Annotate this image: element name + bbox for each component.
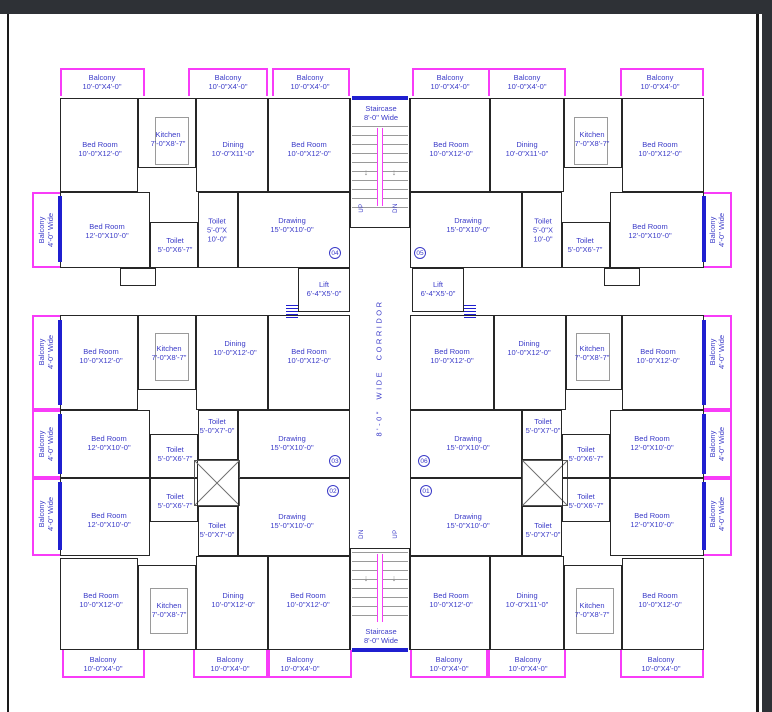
unit-number-badge: 06 — [418, 455, 430, 467]
dining-label: Dining10'-0"X12'-0" — [211, 591, 254, 609]
drawing-label: Drawing15'-0"X10'-0" — [270, 434, 313, 452]
drawing-label: Drawing15'-0"X10'-0" — [446, 434, 489, 452]
corridor-label: 8'-0" WIDE CORRIDOR — [375, 299, 384, 436]
bedroom-label: Bed Room12'-0"X10'-0" — [630, 434, 673, 452]
kitchen-label: Kitchen7'-0"X8'-7" — [575, 344, 610, 362]
kitchen-label: Kitchen7'-0"X8'-7" — [575, 130, 610, 148]
kitchen-label: Kitchen7'-0"X8'-7" — [151, 130, 186, 148]
kitchen-label: Kitchen7'-0"X8'-7" — [152, 344, 187, 362]
balcony-door-line — [58, 414, 62, 474]
bedroom-label: Bed Room10'-0"X12'-0" — [638, 591, 681, 609]
stair-up-label: UP — [359, 203, 365, 212]
bedroom-label: Bed Room10'-0"X12'-0" — [78, 140, 121, 158]
drawing-label: Drawing15'-0"X10'-0" — [446, 512, 489, 530]
balcony-label: Balcony10'-0"X4'-0" — [430, 73, 469, 91]
toilet-label: Toilet5'-0"X7'-0" — [526, 417, 561, 435]
window-frame-top — [0, 0, 772, 14]
stair-dn-label: DN — [393, 203, 399, 213]
balcony-label: Balcony10'-0"X4'-0" — [290, 73, 329, 91]
bedroom-label: Bed Room10'-0"X12'-0" — [287, 347, 330, 365]
balcony-label: Balcony10'-0"X4'-0" — [640, 73, 679, 91]
bedroom-label: Bed Room12'-0"X10'-0" — [87, 511, 130, 529]
unit-number-badge: 01 — [420, 485, 432, 497]
balcony-door-line — [702, 414, 706, 474]
lift-door-hatch — [464, 305, 476, 318]
bedroom-label: Bed Room10'-0"X12'-0" — [429, 140, 472, 158]
balcony-label: Balcony10'-0"X4'-0" — [508, 655, 547, 673]
bedroom-label: Bed Room10'-0"X12'-0" — [430, 347, 473, 365]
staircase-landing-edge — [352, 648, 408, 652]
balcony-door-line — [58, 482, 62, 550]
dining-label: Dining10'-0"X12'-0" — [213, 339, 256, 357]
sheet-border-left — [7, 14, 9, 712]
bedroom-label: Bed Room10'-0"X12'-0" — [287, 140, 330, 158]
bedroom-label: Bed Room12'-0"X10'-0" — [628, 222, 671, 240]
balcony-side-label: Balcony4'-0" Wide — [708, 427, 726, 461]
balcony-door-line — [58, 196, 62, 262]
balcony-side-label: Balcony4'-0" Wide — [37, 427, 55, 461]
drawing-label: Drawing15'-0"X10'-0" — [446, 216, 489, 234]
dining-label: Dining10'-0"X12'-0" — [507, 339, 550, 357]
staircase-landing-edge — [352, 96, 408, 100]
unit-number-badge: 02 — [327, 485, 339, 497]
balcony-side-label: Balcony4'-0" Wide — [708, 213, 726, 247]
balcony-door-line — [702, 320, 706, 405]
stair-direction-arrow: ↓ — [392, 573, 397, 583]
bedroom-label: Bed Room10'-0"X12'-0" — [638, 140, 681, 158]
floor-plan-page: { "colors": { "wall": "#262626", "balcon… — [0, 0, 772, 712]
balcony-label: Balcony10'-0"X4'-0" — [507, 73, 546, 91]
kitchen-label: Kitchen7'-0"X8'-7" — [152, 601, 187, 619]
balcony-side-label: Balcony4'-0" Wide — [37, 497, 55, 531]
stair-dn-label: DN — [359, 529, 365, 539]
balcony-door-line — [58, 320, 62, 405]
stair-stringer — [377, 554, 383, 622]
balcony-side-label: Balcony4'-0" Wide — [708, 497, 726, 531]
duct-shaft — [194, 460, 240, 506]
balcony-side-label: Balcony4'-0" Wide — [37, 213, 55, 247]
balcony-door-line — [702, 482, 706, 550]
window-frame-right — [762, 0, 772, 712]
stair-stringer — [377, 128, 383, 206]
toilet-label: Toilet5'-0"X6'-7" — [569, 445, 604, 463]
balcony-label: Balcony10'-0"X4'-0" — [82, 73, 121, 91]
drawing-label: Drawing15'-0"X10'-0" — [270, 512, 313, 530]
sheet-border-right — [756, 14, 759, 712]
bedroom-label: Bed Room12'-0"X10'-0" — [630, 511, 673, 529]
room-outline-dining — [196, 315, 268, 410]
toilet-label: Toilet5'-0"X6'-7" — [569, 492, 604, 510]
toilet-label: Toilet5'-0"X10'-0" — [533, 216, 553, 243]
unit-number-badge: 04 — [329, 247, 341, 259]
toilet-label: Toilet5'-0"X10'-0" — [207, 216, 227, 243]
stair-up-label: UP — [393, 529, 399, 538]
bedroom-label: Bed Room10'-0"X12'-0" — [636, 347, 679, 365]
lift-label: Lift6'-4"X5'-0" — [421, 280, 456, 298]
balcony-side-label: Balcony4'-0" Wide — [37, 335, 55, 369]
bedroom-label: Bed Room10'-0"X12'-0" — [79, 591, 122, 609]
balcony-door-line — [702, 196, 706, 262]
unit-number-badge: 03 — [329, 455, 341, 467]
balcony-label: Balcony10'-0"X4'-0" — [208, 73, 247, 91]
entrance-porch — [604, 268, 640, 286]
balcony-label: Balcony10'-0"X4'-0" — [210, 655, 249, 673]
toilet-label: Toilet5'-0"X6'-7" — [158, 492, 193, 510]
balcony-label: Balcony10'-0"X4'-0" — [280, 655, 319, 673]
kitchen-label: Kitchen7'-0"X8'-7" — [575, 601, 610, 619]
balcony-side-label: Balcony4'-0" Wide — [708, 335, 726, 369]
drawing-label: Drawing15'-0"X10'-0" — [270, 216, 313, 234]
dining-label: Dining10'-0"X11'-0" — [506, 140, 549, 158]
staircase-label: Staircase8'-0" Wide — [364, 104, 398, 122]
bedroom-label: Bed Room10'-0"X12'-0" — [286, 591, 329, 609]
toilet-label: Toilet5'-0"X6'-7" — [158, 236, 193, 254]
bedroom-label: Bed Room12'-0"X10'-0" — [85, 222, 128, 240]
staircase-label: Staircase8'-0" Wide — [364, 627, 398, 645]
toilet-label: Toilet5'-0"X7'-0" — [200, 521, 235, 539]
stair-direction-arrow: ↓ — [392, 167, 397, 177]
toilet-label: Toilet5'-0"X6'-7" — [568, 236, 603, 254]
entrance-porch — [120, 268, 156, 286]
room-outline-dining — [494, 315, 566, 410]
toilet-label: Toilet5'-0"X6'-7" — [158, 445, 193, 463]
lift-door-hatch — [286, 305, 298, 318]
bedroom-label: Bed Room10'-0"X12'-0" — [429, 591, 472, 609]
dining-label: Dining10'-0"X11'-0" — [212, 140, 255, 158]
dining-label: Dining10'-0"X11'-0" — [506, 591, 549, 609]
bedroom-label: Bed Room10'-0"X12'-0" — [79, 347, 122, 365]
balcony-label: Balcony10'-0"X4'-0" — [641, 655, 680, 673]
lift-label: Lift6'-4"X5'-0" — [307, 280, 342, 298]
stair-direction-arrow: ↓ — [364, 167, 369, 177]
floor-plan: Balcony10'-0"X4'-0" Balcony10'-0"X4'-0" … — [0, 0, 772, 712]
toilet-label: Toilet5'-0"X7'-0" — [526, 521, 561, 539]
unit-number-badge: 05 — [414, 247, 426, 259]
bedroom-label: Bed Room12'-0"X10'-0" — [87, 434, 130, 452]
balcony-label: Balcony10'-0"X4'-0" — [83, 655, 122, 673]
stair-direction-arrow: ↓ — [364, 573, 369, 583]
toilet-label: Toilet5'-0"X7'-0" — [200, 417, 235, 435]
balcony-label: Balcony10'-0"X4'-0" — [429, 655, 468, 673]
